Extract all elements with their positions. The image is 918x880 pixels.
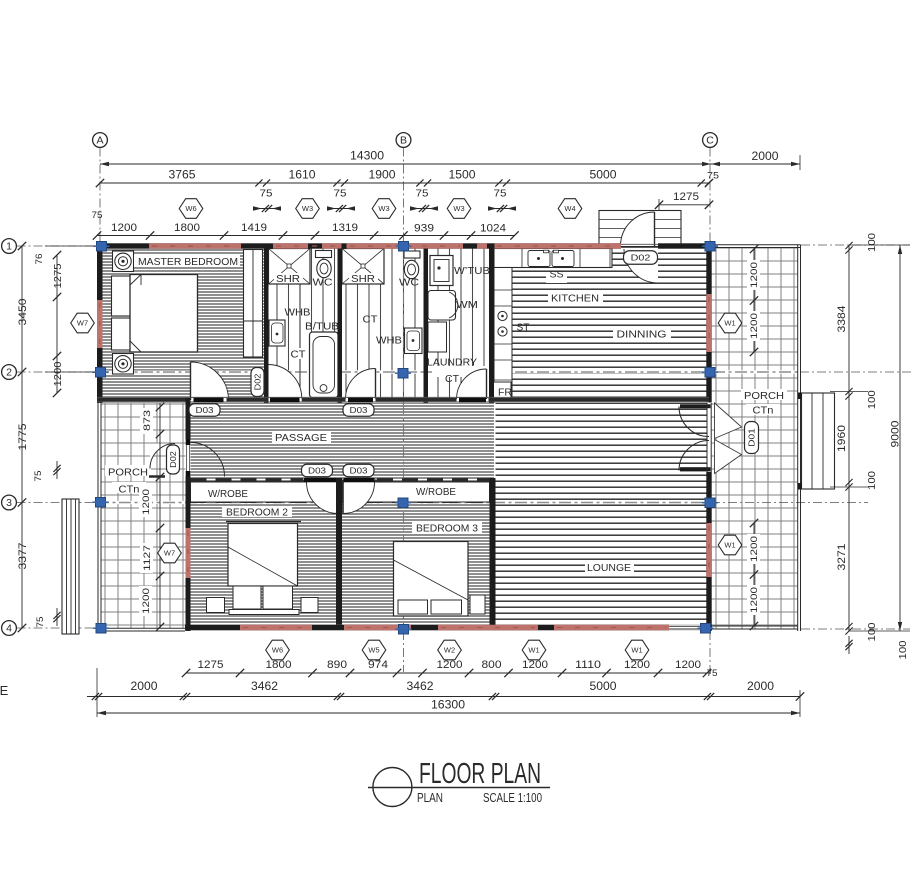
svg-text:75: 75 <box>33 471 43 482</box>
svg-text:BEDROOM 3: BEDROOM 3 <box>416 523 478 535</box>
svg-text:FLOOR PLAN: FLOOR PLAN <box>419 758 541 790</box>
svg-text:PORCH: PORCH <box>108 467 148 479</box>
svg-text:1200: 1200 <box>749 536 760 562</box>
svg-text:974: 974 <box>368 659 388 671</box>
svg-text:9000: 9000 <box>890 421 902 448</box>
svg-text:2: 2 <box>6 367 12 379</box>
svg-text:WHB: WHB <box>376 336 402 347</box>
svg-text:100: 100 <box>867 622 878 641</box>
svg-text:1200: 1200 <box>52 361 64 386</box>
svg-text:W/ROBE: W/ROBE <box>416 486 456 498</box>
svg-text:CT: CT <box>445 374 459 385</box>
svg-text:W1: W1 <box>528 646 539 655</box>
svg-text:14300: 14300 <box>350 151 384 163</box>
svg-text:DINNING: DINNING <box>617 329 667 341</box>
svg-text:75: 75 <box>35 617 45 628</box>
svg-text:BEDROOM 2: BEDROOM 2 <box>226 507 288 519</box>
svg-text:1200: 1200 <box>675 659 701 671</box>
svg-text:W2: W2 <box>444 646 455 655</box>
svg-text:75: 75 <box>416 188 429 200</box>
svg-text:CT: CT <box>291 350 306 361</box>
svg-text:W’TUB: W’TUB <box>454 266 490 277</box>
svg-text:5000: 5000 <box>590 681 617 693</box>
svg-text:KITCHEN: KITCHEN <box>551 293 599 305</box>
svg-text:2000: 2000 <box>752 151 779 163</box>
svg-text:W6: W6 <box>272 646 283 655</box>
svg-text:D01: D01 <box>747 428 757 447</box>
svg-text:D03: D03 <box>350 466 368 476</box>
svg-text:D02: D02 <box>253 373 263 390</box>
svg-text:1200: 1200 <box>437 659 463 671</box>
svg-text:2000: 2000 <box>747 681 774 693</box>
svg-text:16300: 16300 <box>431 700 465 712</box>
svg-text:3462: 3462 <box>251 681 278 693</box>
svg-text:1200: 1200 <box>111 222 137 234</box>
svg-text:D03: D03 <box>308 466 326 476</box>
svg-text:939: 939 <box>414 223 434 235</box>
svg-text:PASSAGE: PASSAGE <box>275 432 327 444</box>
svg-text:75: 75 <box>260 188 273 200</box>
svg-text:75: 75 <box>494 188 507 200</box>
svg-text:1127: 1127 <box>142 545 153 571</box>
svg-text:LOUNGE: LOUNGE <box>587 562 631 574</box>
svg-text:D03: D03 <box>196 405 214 415</box>
svg-text:W3: W3 <box>453 204 464 213</box>
svg-text:3384: 3384 <box>836 306 848 333</box>
svg-text:ST: ST <box>517 323 530 334</box>
svg-text:4: 4 <box>6 623 12 635</box>
svg-text:WC: WC <box>313 278 333 289</box>
svg-text:B/TUB: B/TUB <box>305 322 339 333</box>
svg-text:D02: D02 <box>631 253 651 263</box>
svg-text:E: E <box>0 683 9 698</box>
svg-text:75: 75 <box>707 171 719 182</box>
svg-text:LAUNDRY: LAUNDRY <box>427 358 477 369</box>
svg-text:1775: 1775 <box>17 424 29 451</box>
svg-text:W/ROBE: W/ROBE <box>208 488 248 500</box>
svg-text:100: 100 <box>867 233 878 252</box>
svg-text:1200: 1200 <box>141 588 152 614</box>
svg-text:A: A <box>96 135 103 147</box>
svg-text:2000: 2000 <box>131 681 158 693</box>
svg-text:1500: 1500 <box>449 170 476 182</box>
svg-text:1960: 1960 <box>836 425 848 452</box>
svg-text:1275: 1275 <box>52 263 64 288</box>
svg-text:W6: W6 <box>185 204 196 213</box>
svg-text:75: 75 <box>707 668 718 679</box>
svg-text:W1: W1 <box>724 319 735 328</box>
svg-text:5000: 5000 <box>590 170 617 182</box>
svg-text:W7: W7 <box>77 319 88 328</box>
svg-text:1275: 1275 <box>198 659 224 671</box>
svg-text:1200: 1200 <box>749 262 760 288</box>
svg-text:1200: 1200 <box>522 659 548 671</box>
svg-text:1200: 1200 <box>141 489 152 515</box>
svg-text:76: 76 <box>34 254 44 265</box>
svg-text:CTn: CTn <box>753 405 774 417</box>
svg-text:1800: 1800 <box>174 222 200 234</box>
svg-text:WM: WM <box>456 300 478 311</box>
svg-text:1610: 1610 <box>289 170 316 182</box>
svg-text:1275: 1275 <box>673 191 699 203</box>
svg-text:3: 3 <box>6 497 12 509</box>
svg-text:1419: 1419 <box>241 222 267 234</box>
svg-text:W7: W7 <box>164 549 175 558</box>
svg-text:873: 873 <box>142 410 153 431</box>
svg-text:D03: D03 <box>350 405 368 415</box>
svg-text:SHR: SHR <box>276 274 300 285</box>
svg-text:PORCH: PORCH <box>744 390 784 402</box>
svg-text:1200: 1200 <box>749 587 760 613</box>
svg-text:75: 75 <box>92 210 103 221</box>
svg-text:CT: CT <box>363 315 378 326</box>
svg-text:3450: 3450 <box>17 299 29 326</box>
svg-text:C: C <box>706 135 714 147</box>
svg-text:100: 100 <box>867 471 878 490</box>
svg-text:W5: W5 <box>368 646 379 655</box>
svg-text:1200: 1200 <box>749 313 760 339</box>
svg-text:B: B <box>400 135 407 147</box>
svg-text:D02: D02 <box>168 451 178 468</box>
svg-text:WHB: WHB <box>285 308 311 319</box>
svg-text:800: 800 <box>482 659 502 671</box>
svg-text:PLAN: PLAN <box>417 790 443 805</box>
svg-text:1: 1 <box>6 241 12 253</box>
svg-text:W3: W3 <box>302 204 313 213</box>
svg-text:3377: 3377 <box>17 543 29 570</box>
svg-text:SCALE 1:100: SCALE 1:100 <box>483 790 542 805</box>
svg-text:3462: 3462 <box>407 681 434 693</box>
svg-text:1800: 1800 <box>266 659 292 671</box>
svg-text:1024: 1024 <box>480 223 506 235</box>
svg-text:SS: SS <box>550 270 564 281</box>
svg-text:MASTER BEDROOM: MASTER BEDROOM <box>138 256 238 268</box>
svg-text:1200: 1200 <box>624 659 650 671</box>
svg-text:1900: 1900 <box>369 170 396 182</box>
svg-text:WC: WC <box>399 278 419 289</box>
svg-text:890: 890 <box>327 659 347 671</box>
svg-text:SHR: SHR <box>351 274 375 285</box>
svg-text:FR: FR <box>498 388 512 399</box>
svg-text:100: 100 <box>898 640 909 659</box>
svg-text:100: 100 <box>867 390 878 409</box>
svg-text:1110: 1110 <box>575 659 601 671</box>
svg-text:3765: 3765 <box>169 170 196 182</box>
svg-text:75: 75 <box>334 188 347 200</box>
svg-text:1319: 1319 <box>332 222 358 234</box>
svg-text:3271: 3271 <box>836 544 848 571</box>
svg-text:CTn: CTn <box>119 484 140 496</box>
svg-text:W1: W1 <box>724 541 735 550</box>
svg-text:W3: W3 <box>378 204 389 213</box>
svg-text:W4: W4 <box>564 204 575 213</box>
svg-text:W1: W1 <box>631 646 642 655</box>
